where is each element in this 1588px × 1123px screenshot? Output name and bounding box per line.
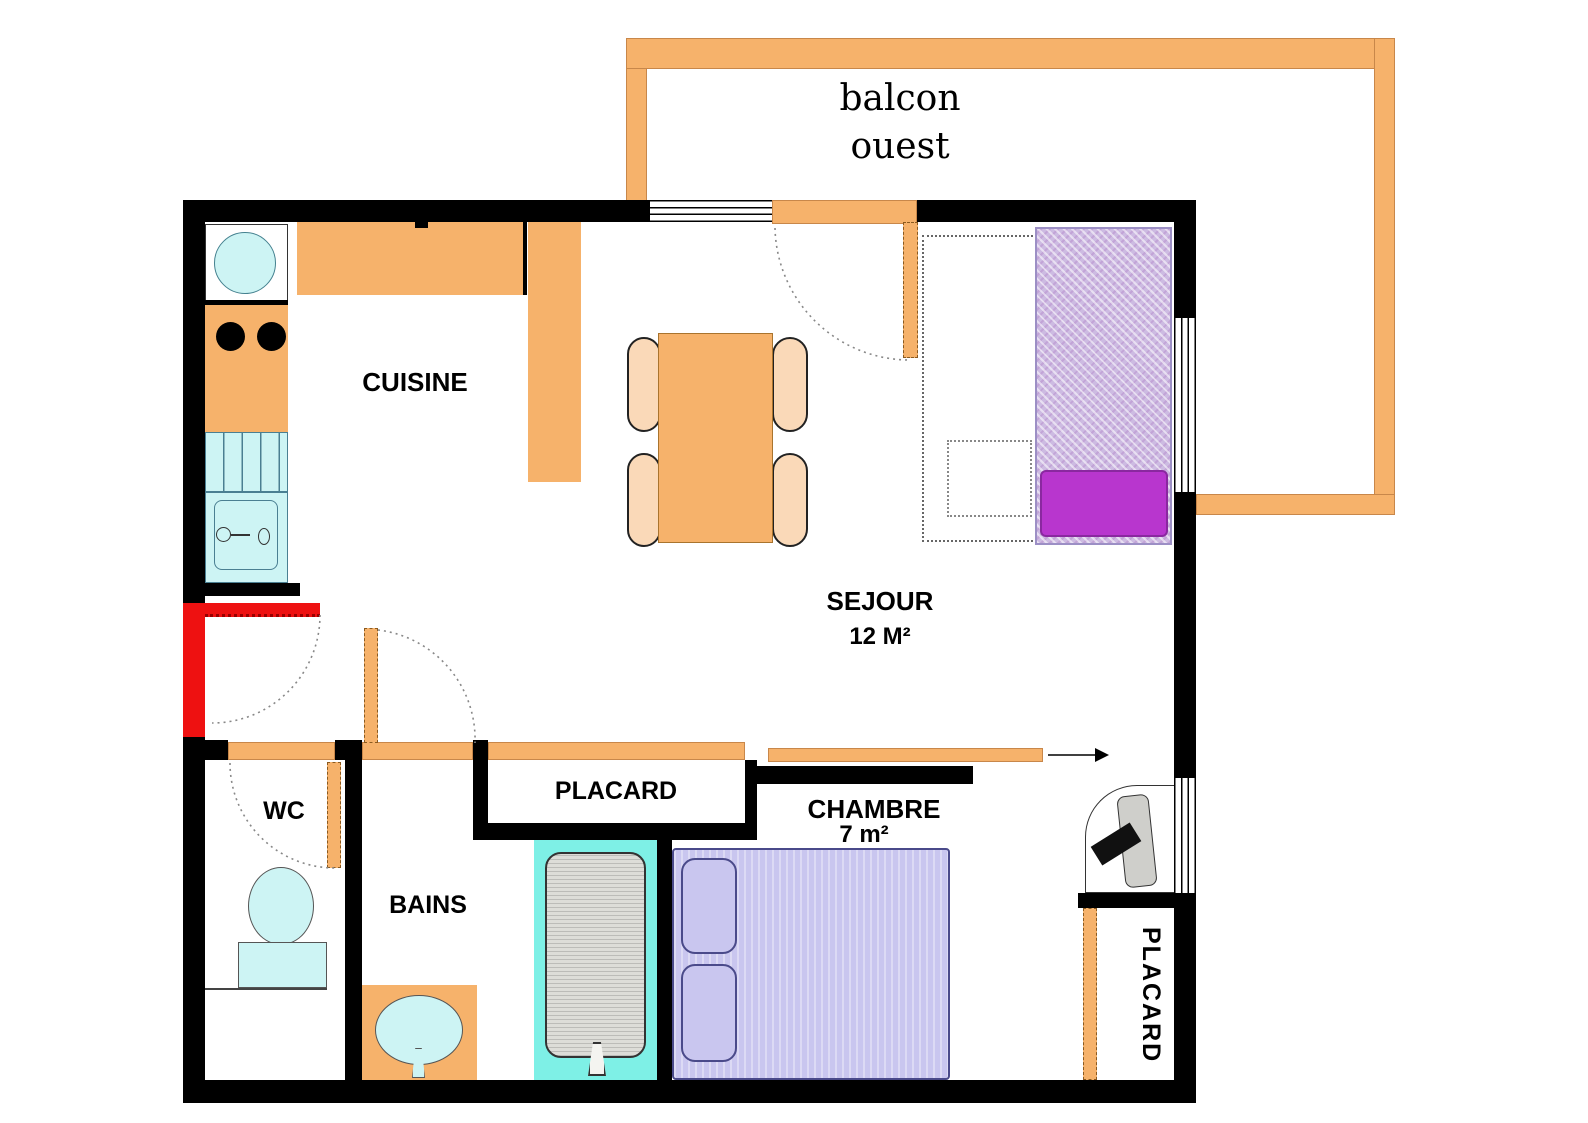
label-chambre: CHAMBRE — [784, 796, 964, 823]
sofa-bed-table-outline — [947, 440, 1032, 517]
placard-hall-door — [488, 742, 745, 760]
label-chambre-area: 7 m² — [784, 822, 944, 847]
label-placard-hall: PLACARD — [516, 778, 716, 804]
window-chambre-right — [1174, 778, 1196, 895]
toilet-cistern — [238, 942, 327, 988]
wall-top-right — [917, 200, 1196, 222]
balcony-label-line1: balcon — [750, 80, 1050, 118]
pillow — [681, 964, 737, 1062]
drain-icon — [258, 528, 270, 545]
bathtub-basin — [545, 852, 646, 1058]
wall-left-upper — [183, 200, 205, 603]
wall-right-3 — [1174, 895, 1196, 1103]
chair — [772, 453, 808, 547]
label-wc: WC — [234, 798, 334, 824]
chair — [772, 337, 808, 432]
balcony-wall-bottom — [1196, 494, 1395, 515]
balcony-label-line2: ouest — [750, 128, 1050, 166]
wall-hall-post-mid — [335, 740, 362, 760]
chair — [627, 337, 661, 432]
dining-table — [658, 333, 773, 543]
sliding-door-arrowhead-icon — [1095, 748, 1109, 762]
kitchen-tall-cabinet — [528, 222, 581, 482]
label-cuisine: CUISINE — [330, 369, 500, 396]
wall-wc-bains — [345, 760, 362, 1080]
label-placard-chambre: PLACARD — [1104, 915, 1164, 1075]
floor-plan: balcon ouest — [0, 0, 1588, 1123]
wall-hall-post-right — [473, 740, 488, 760]
balcony-wall-top — [626, 38, 1395, 69]
stove-burner-icon — [257, 322, 286, 351]
pillow — [681, 858, 737, 954]
drainboard — [205, 432, 288, 492]
toilet-bowl — [248, 867, 314, 945]
wall-placard-hall-bottom — [473, 823, 757, 840]
label-sejour: SEJOUR — [790, 588, 970, 615]
window-sejour-right — [1174, 318, 1196, 492]
wall-chambre-top — [757, 766, 973, 784]
balcony-door-lintel — [772, 200, 917, 224]
bains-door-sill — [362, 742, 473, 760]
chair — [627, 453, 661, 547]
sofa-bed-cushion — [1040, 470, 1168, 537]
wall-top-left — [183, 200, 650, 222]
wall-placard-chambre-top — [1078, 893, 1196, 908]
window-balcony-left — [650, 200, 772, 222]
entry-door-frame — [183, 603, 205, 737]
stove-burner-icon — [216, 322, 245, 351]
wc-door-sill — [228, 742, 335, 760]
wall-bottom — [183, 1080, 1196, 1103]
bains-door-leaf — [364, 628, 378, 743]
wall-right-1 — [1174, 200, 1196, 318]
wall-hall-post-left — [205, 740, 228, 760]
wall-right-2 — [1174, 492, 1196, 778]
faucet-handle-icon — [231, 534, 250, 536]
wall-placard-hall-right — [745, 760, 757, 823]
placard-chambre-door — [1083, 908, 1097, 1080]
balcony-wall-right — [1374, 38, 1395, 515]
faucet-icon — [216, 527, 231, 542]
kitchen-counter-top — [297, 222, 525, 295]
wall-kitchen-stub — [205, 583, 300, 596]
label-sejour-area: 12 M² — [790, 624, 970, 649]
washing-machine-drum-icon — [214, 232, 276, 294]
wall-left-lower — [183, 737, 205, 1103]
counter-end-line — [523, 222, 527, 295]
chambre-sliding-door-track — [768, 748, 1043, 762]
wc-back-line — [205, 988, 327, 990]
entry-door-swing-arc — [212, 615, 320, 723]
entry-door-leaf — [205, 603, 320, 617]
balcony-door-leaf — [903, 222, 918, 358]
counter-notch — [415, 222, 428, 228]
label-bains: BAINS — [358, 892, 498, 918]
bains-door-swing-arc — [378, 630, 475, 743]
